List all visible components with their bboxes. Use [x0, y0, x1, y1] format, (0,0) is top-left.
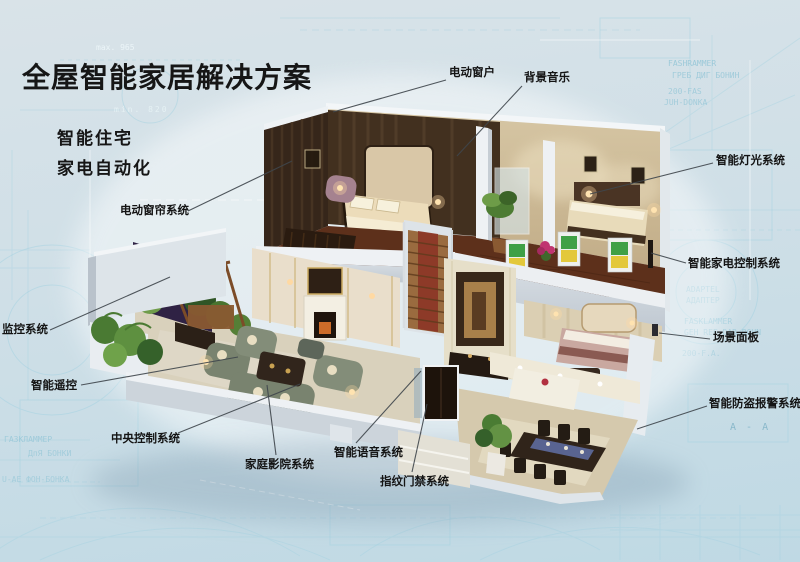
- svg-text:A - A: A - A: [730, 422, 770, 433]
- svg-text:U-АЕ ФОН-БОНКА: U-АЕ ФОН-БОНКА: [2, 475, 70, 484]
- svg-text:max. 965: max. 965: [96, 43, 135, 52]
- callout-anti-theft-alarm: 智能防盗报警系统: [709, 395, 800, 411]
- callout-fingerprint-access: 指纹门禁系统: [380, 473, 449, 489]
- callout-central-control: 中央控制系统: [111, 430, 180, 446]
- callout-electric-curtain: 电动窗帘系统: [120, 202, 189, 218]
- speaker-pole: [648, 240, 653, 268]
- callout-smart-lighting: 智能灯光系统: [716, 152, 785, 168]
- callout-smart-voice: 智能语音系统: [334, 444, 403, 460]
- callout-electric-window: 电动窗户: [449, 64, 495, 80]
- poster: max. 965 min. 820 FASHRAMMER ГРЕБ ДИГ БО…: [0, 0, 800, 562]
- callout-smart-appliance-control: 智能家电控制系统: [688, 255, 780, 271]
- svg-text:JUH-DONKA: JUH-DONKA: [664, 98, 708, 107]
- callout-background-music: 背景音乐: [524, 69, 570, 85]
- callout-surveillance: 监控系统: [2, 321, 48, 337]
- svg-text:200-FAS: 200-FAS: [668, 87, 702, 96]
- subtitle-smart-residence: 智能住宅: [57, 124, 133, 149]
- callout-smart-remote: 智能遥控: [31, 377, 77, 393]
- callout-scene-panel: 场景面板: [713, 329, 759, 345]
- svg-text:min. 820: min. 820: [114, 105, 169, 114]
- svg-text:ГРЕБ ДИГ БОНИН: ГРЕБ ДИГ БОНИН: [672, 71, 740, 80]
- subtitle-home-automation: 家电自动化: [57, 154, 152, 179]
- scene-panel-device: [652, 324, 658, 336]
- page-title: 全屋智能家居解决方案: [22, 56, 312, 96]
- svg-text:FASHRAMMER: FASHRAMMER: [668, 59, 716, 68]
- svg-text:ДпЯ БОНКИ: ДпЯ БОНКИ: [28, 449, 72, 458]
- svg-text:ГАЗКЛАММЕР: ГАЗКЛАММЕР: [4, 435, 52, 444]
- callout-home-theater: 家庭影院系统: [245, 456, 314, 472]
